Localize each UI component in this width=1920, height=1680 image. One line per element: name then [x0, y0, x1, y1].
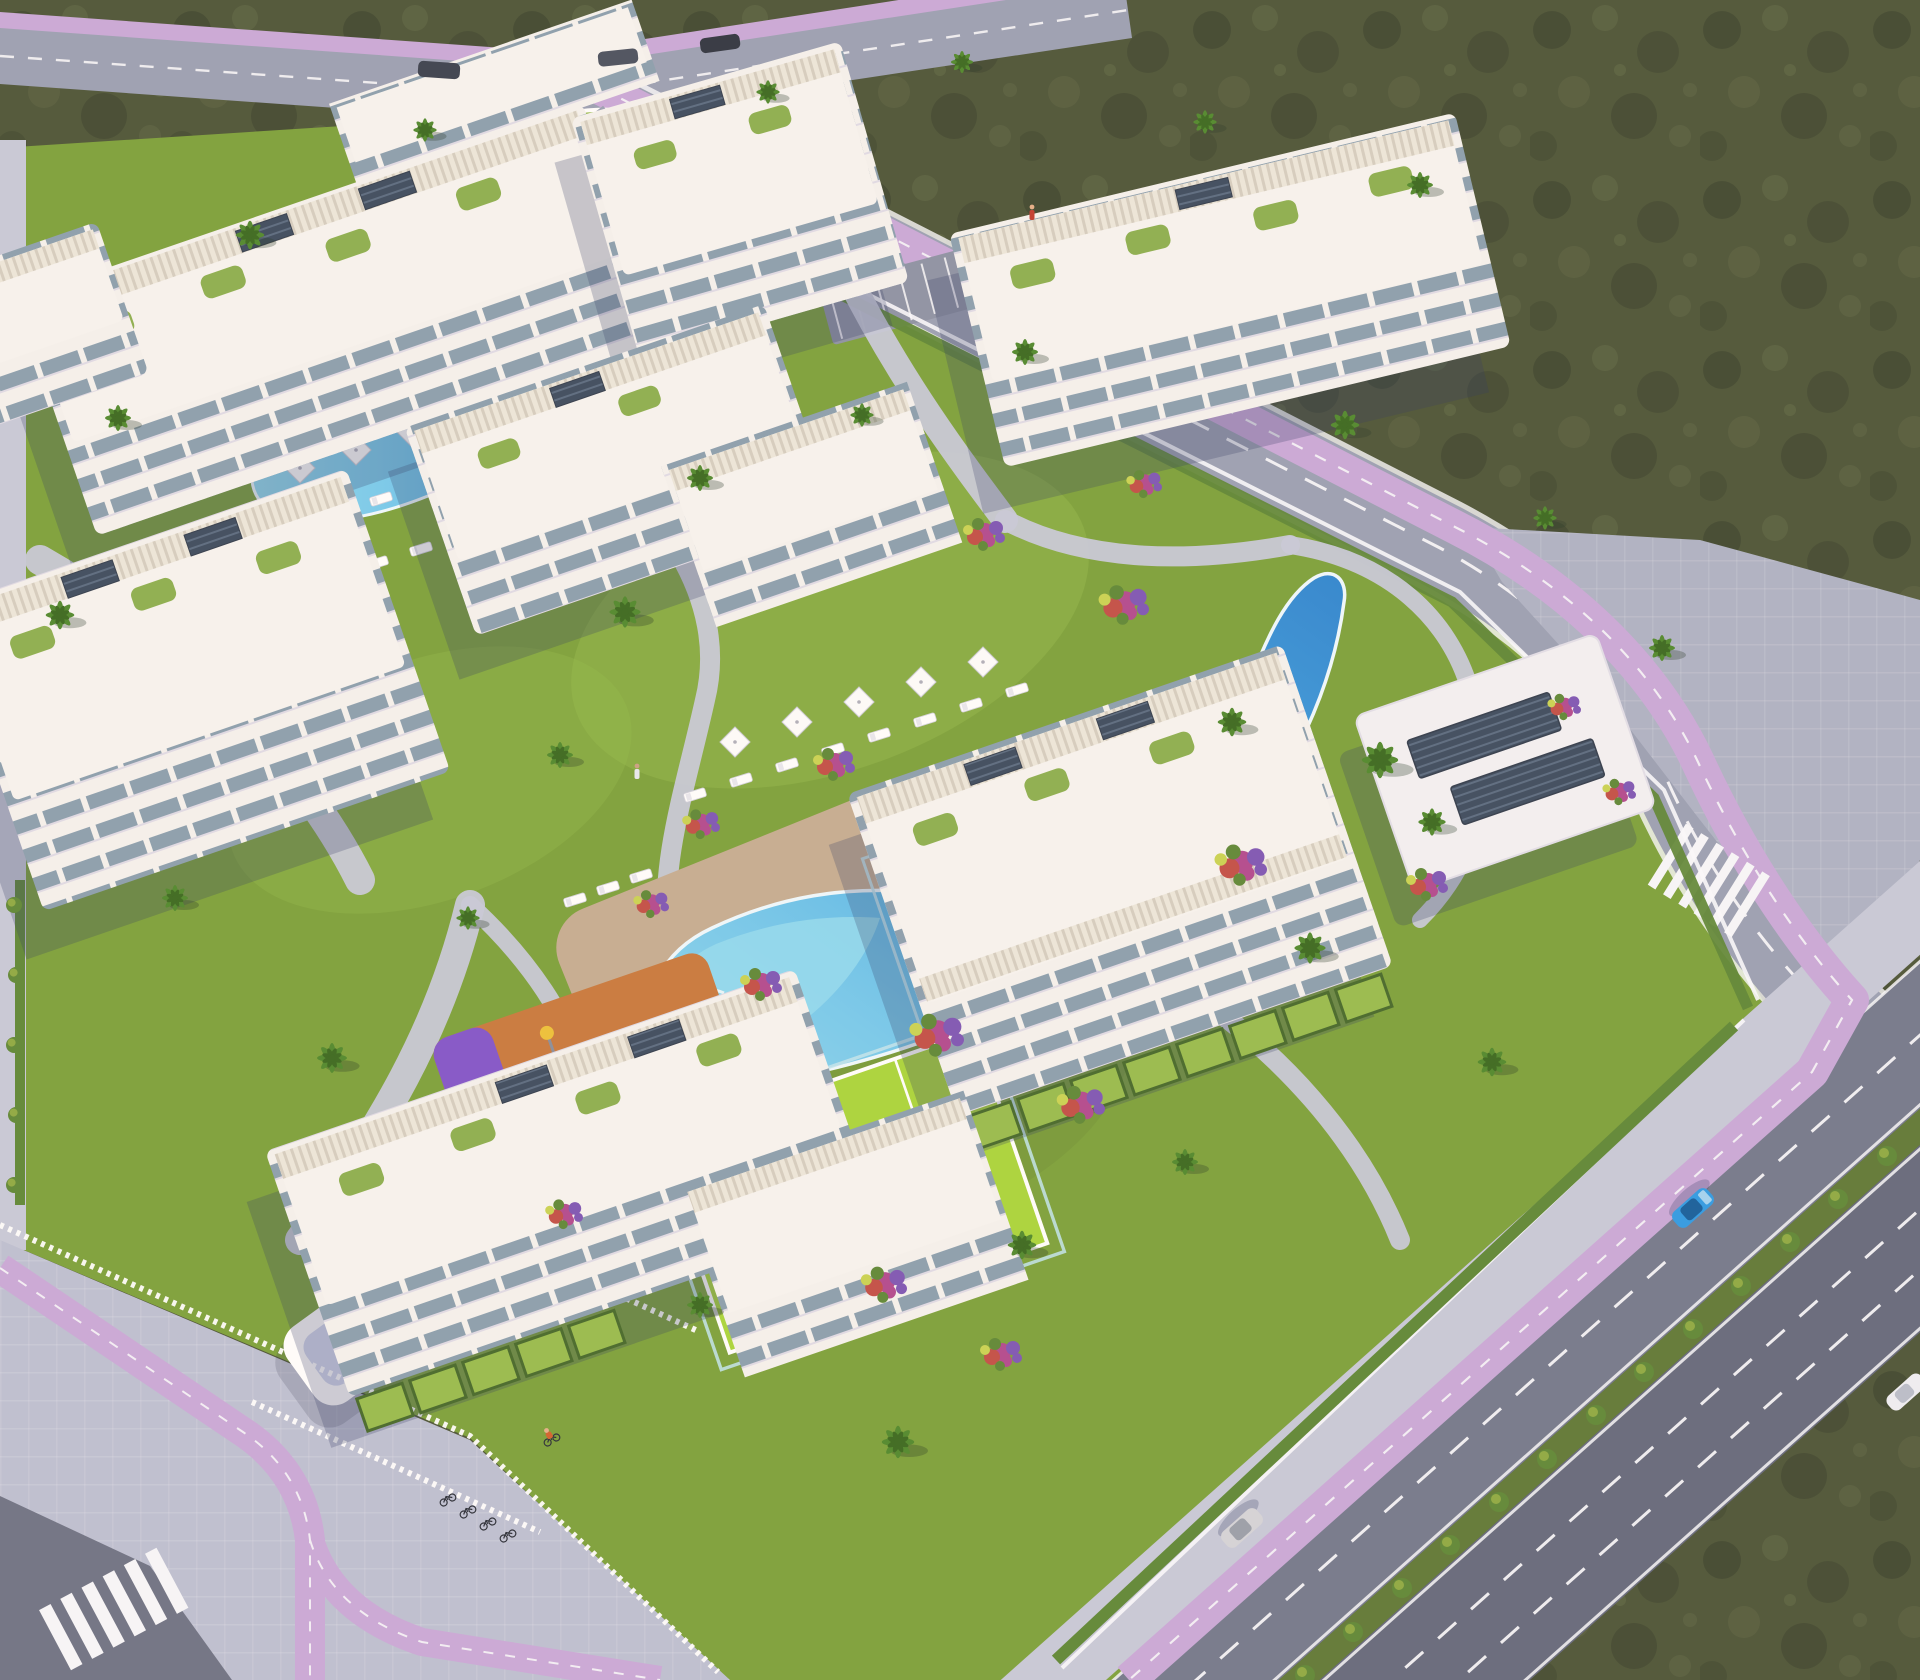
dusk-light-overlay	[0, 0, 1920, 1680]
aerial-render: Aerial dusk rendering of a gated residen…	[0, 0, 1920, 1680]
